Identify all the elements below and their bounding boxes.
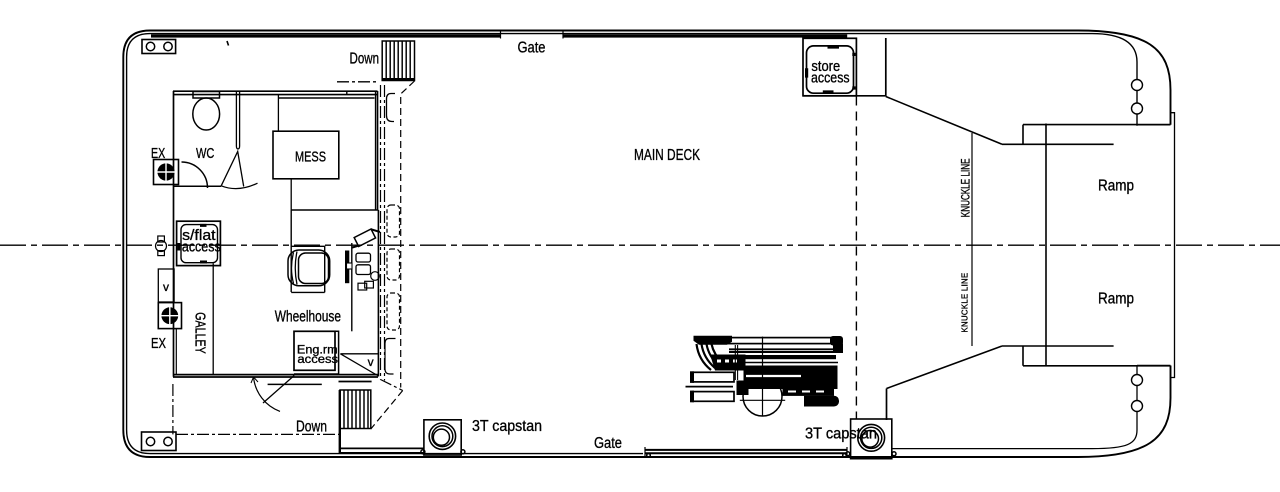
svg-text:EX: EX [151,145,165,162]
svg-text:WC: WC [196,145,215,162]
svg-text:Ramp: Ramp [1098,290,1134,307]
svg-text:v: v [368,355,374,369]
svg-text:KNUCKLE LINE: KNUCKLE LINE [961,273,970,333]
svg-text:access: access [297,352,338,366]
svg-text:KNUCKLE LINE: KNUCKLE LINE [958,158,972,217]
svg-text:GALLEY: GALLEY [192,312,208,354]
svg-text:Gate: Gate [594,435,622,452]
svg-text:v: v [163,280,169,294]
svg-text:MAIN DECK: MAIN DECK [634,147,701,164]
svg-text:MESS: MESS [295,149,326,166]
svg-text:Gate: Gate [518,39,546,56]
svg-text:3T capstan: 3T capstan [472,418,542,435]
svg-text:Wheelhouse: Wheelhouse [275,309,341,326]
svg-text:access: access [182,240,221,256]
svg-text:Ramp: Ramp [1098,178,1134,195]
svg-text:3T capstan: 3T capstan [805,426,877,443]
svg-text:Down: Down [350,51,380,68]
svg-text:EX: EX [151,335,166,352]
svg-text:Down: Down [296,418,327,435]
svg-text:access: access [811,70,850,86]
